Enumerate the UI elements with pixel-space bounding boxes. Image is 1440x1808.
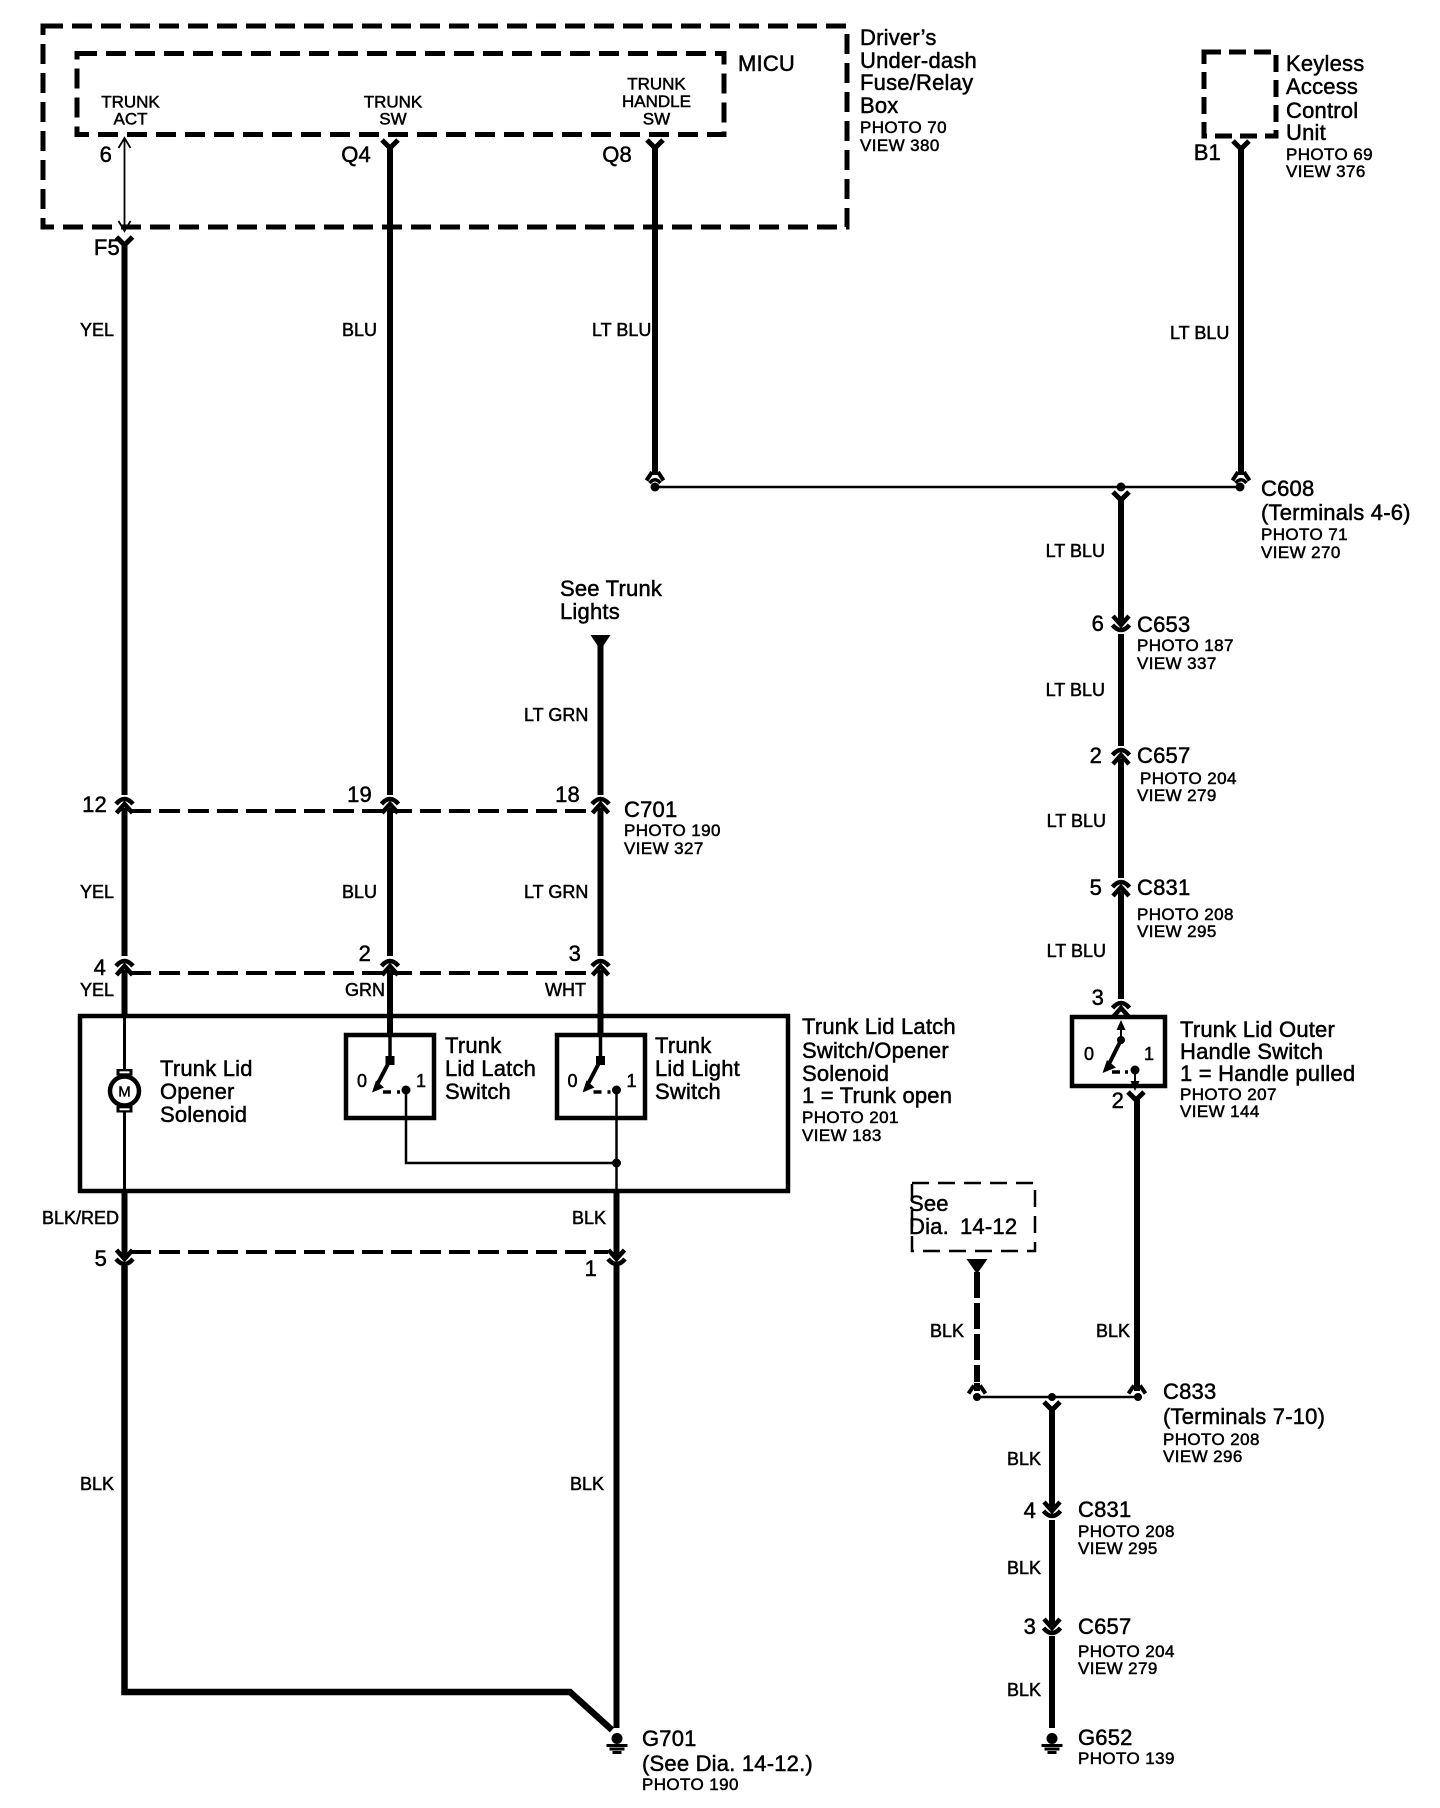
svg-text:Q4: Q4 (341, 142, 371, 167)
svg-text:VIEW 295: VIEW 295 (1078, 1539, 1158, 1558)
svg-text:6: 6 (1092, 611, 1104, 636)
svg-text:BLK/RED: BLK/RED (42, 1208, 119, 1228)
svg-text:3: 3 (1024, 1614, 1036, 1639)
svg-text:1: 1 (626, 1071, 636, 1091)
svg-text:C657: C657 (1137, 743, 1190, 768)
svg-text:PHOTO 190: PHOTO 190 (642, 1775, 739, 1794)
svg-text:B1: B1 (1194, 140, 1221, 165)
svg-text:VIEW 296: VIEW 296 (1163, 1447, 1243, 1466)
svg-text:LT BLU: LT BLU (592, 320, 651, 340)
svg-text:19: 19 (347, 782, 372, 807)
svg-text:LT BLU: LT BLU (1046, 680, 1105, 700)
svg-text:14-12: 14-12 (960, 1214, 1017, 1239)
svg-text:Dia.: Dia. (909, 1214, 949, 1239)
svg-text:(Terminals 4-6): (Terminals 4-6) (1261, 500, 1411, 525)
svg-text:18: 18 (555, 782, 580, 807)
svg-text:VIEW 295: VIEW 295 (1137, 922, 1217, 941)
svg-text:Unit: Unit (1286, 120, 1326, 145)
svg-text:VIEW 279: VIEW 279 (1137, 786, 1217, 805)
svg-text:TRUNK: TRUNK (627, 75, 686, 94)
svg-text:5: 5 (1090, 875, 1102, 900)
svg-text:HANDLE: HANDLE (622, 92, 691, 111)
svg-text:0: 0 (567, 1071, 577, 1091)
svg-text:M: M (118, 1084, 131, 1101)
svg-text:BLK: BLK (1007, 1449, 1041, 1469)
svg-text:BLK: BLK (1007, 1558, 1041, 1578)
svg-text:0: 0 (1084, 1044, 1094, 1064)
svg-text:G652: G652 (1078, 1725, 1133, 1750)
svg-text:VIEW 327: VIEW 327 (624, 839, 704, 858)
svg-text:VIEW 380: VIEW 380 (860, 136, 940, 155)
svg-text:C831: C831 (1137, 875, 1190, 900)
svg-text:VIEW 279: VIEW 279 (1078, 1659, 1158, 1678)
svg-text:See Trunk: See Trunk (560, 576, 663, 601)
svg-text:LT GRN: LT GRN (524, 705, 588, 725)
svg-text:ACT: ACT (114, 110, 148, 129)
svg-text:C701: C701 (624, 797, 677, 822)
svg-text:C608: C608 (1261, 476, 1314, 501)
svg-text:See: See (909, 1191, 949, 1216)
svg-text:VIEW 183: VIEW 183 (802, 1126, 882, 1145)
svg-text:SW: SW (643, 110, 670, 129)
svg-text:Keyless: Keyless (1286, 51, 1364, 76)
svg-text:LT GRN: LT GRN (524, 882, 588, 902)
svg-text:C653: C653 (1137, 612, 1190, 637)
svg-text:(Terminals 7-10): (Terminals 7-10) (1163, 1404, 1325, 1429)
svg-text:VIEW 376: VIEW 376 (1286, 162, 1366, 181)
svg-text:LT BLU: LT BLU (1046, 541, 1105, 561)
svg-text:Trunk Lid: Trunk Lid (160, 1056, 253, 1081)
svg-text:PHOTO 70: PHOTO 70 (860, 118, 947, 137)
svg-text:C831: C831 (1078, 1497, 1131, 1522)
svg-text:(See Dia. 14-12.): (See Dia. 14-12.) (642, 1751, 813, 1776)
svg-text:VIEW 144: VIEW 144 (1180, 1102, 1260, 1121)
svg-text:4: 4 (94, 955, 106, 980)
svg-text:VIEW 337: VIEW 337 (1137, 654, 1217, 673)
svg-text:5: 5 (95, 1246, 107, 1271)
svg-text:Lid Light: Lid Light (655, 1056, 740, 1081)
svg-text:PHOTO 71: PHOTO 71 (1261, 525, 1348, 544)
svg-text:2: 2 (1090, 743, 1102, 768)
svg-text:Switch: Switch (655, 1079, 721, 1104)
svg-text:G701: G701 (642, 1726, 697, 1751)
svg-text:BLK: BLK (572, 1208, 606, 1228)
svg-text:1 = Handle pulled: 1 = Handle pulled (1180, 1061, 1355, 1086)
svg-text:Trunk Lid Latch: Trunk Lid Latch (802, 1014, 956, 1039)
svg-text:LT BLU: LT BLU (1170, 323, 1229, 343)
svg-text:12: 12 (82, 792, 107, 817)
svg-text:BLK: BLK (80, 1474, 114, 1494)
svg-text:LT BLU: LT BLU (1047, 941, 1106, 961)
svg-text:BLU: BLU (342, 320, 377, 340)
svg-text:BLK: BLK (570, 1474, 604, 1494)
svg-text:2: 2 (1112, 1088, 1124, 1113)
svg-text:Opener: Opener (160, 1079, 235, 1104)
svg-text:Driver’s: Driver’s (860, 25, 937, 50)
svg-text:Solenoid: Solenoid (160, 1102, 247, 1127)
svg-text:Access: Access (1286, 74, 1358, 99)
svg-text:4: 4 (1024, 1498, 1036, 1523)
svg-text:YEL: YEL (80, 882, 114, 902)
svg-text:Fuse/Relay: Fuse/Relay (860, 70, 973, 95)
svg-text:1: 1 (1144, 1044, 1154, 1064)
svg-text:2: 2 (359, 941, 371, 966)
svg-text:LT BLU: LT BLU (1047, 811, 1106, 831)
svg-text:BLK: BLK (1096, 1321, 1130, 1341)
svg-text:PHOTO 190: PHOTO 190 (624, 821, 721, 840)
svg-text:YEL: YEL (80, 980, 114, 1000)
svg-text:YEL: YEL (80, 320, 114, 340)
svg-text:Lights: Lights (560, 599, 620, 624)
svg-text:3: 3 (569, 941, 581, 966)
svg-text:1: 1 (585, 1256, 597, 1281)
svg-text:Trunk: Trunk (655, 1033, 712, 1058)
svg-text:Switch/Opener: Switch/Opener (802, 1038, 949, 1063)
svg-text:6: 6 (100, 142, 112, 167)
svg-text:WHT: WHT (545, 980, 586, 1000)
svg-text:MICU: MICU (738, 51, 795, 76)
svg-text:PHOTO 139: PHOTO 139 (1078, 1749, 1175, 1768)
svg-text:BLK: BLK (930, 1321, 964, 1341)
svg-text:PHOTO 201: PHOTO 201 (802, 1108, 899, 1127)
svg-text:Lid Latch: Lid Latch (445, 1056, 536, 1081)
svg-text:BLU: BLU (342, 882, 377, 902)
svg-text:BLK: BLK (1007, 1680, 1041, 1700)
svg-text:GRN: GRN (345, 980, 385, 1000)
svg-text:Box: Box (860, 93, 899, 118)
svg-text:3: 3 (1092, 985, 1104, 1010)
svg-text:PHOTO 187: PHOTO 187 (1137, 636, 1234, 655)
svg-text:Q8: Q8 (602, 142, 632, 167)
svg-text:C833: C833 (1163, 1379, 1216, 1404)
svg-text:Trunk: Trunk (445, 1033, 502, 1058)
svg-text:SW: SW (379, 110, 406, 129)
svg-text:1: 1 (416, 1071, 426, 1091)
svg-text:0: 0 (357, 1071, 367, 1091)
svg-text:1 = Trunk open: 1 = Trunk open (802, 1083, 952, 1108)
svg-text:C657: C657 (1078, 1614, 1131, 1639)
svg-text:VIEW 270: VIEW 270 (1261, 543, 1341, 562)
svg-text:Switch: Switch (445, 1079, 511, 1104)
